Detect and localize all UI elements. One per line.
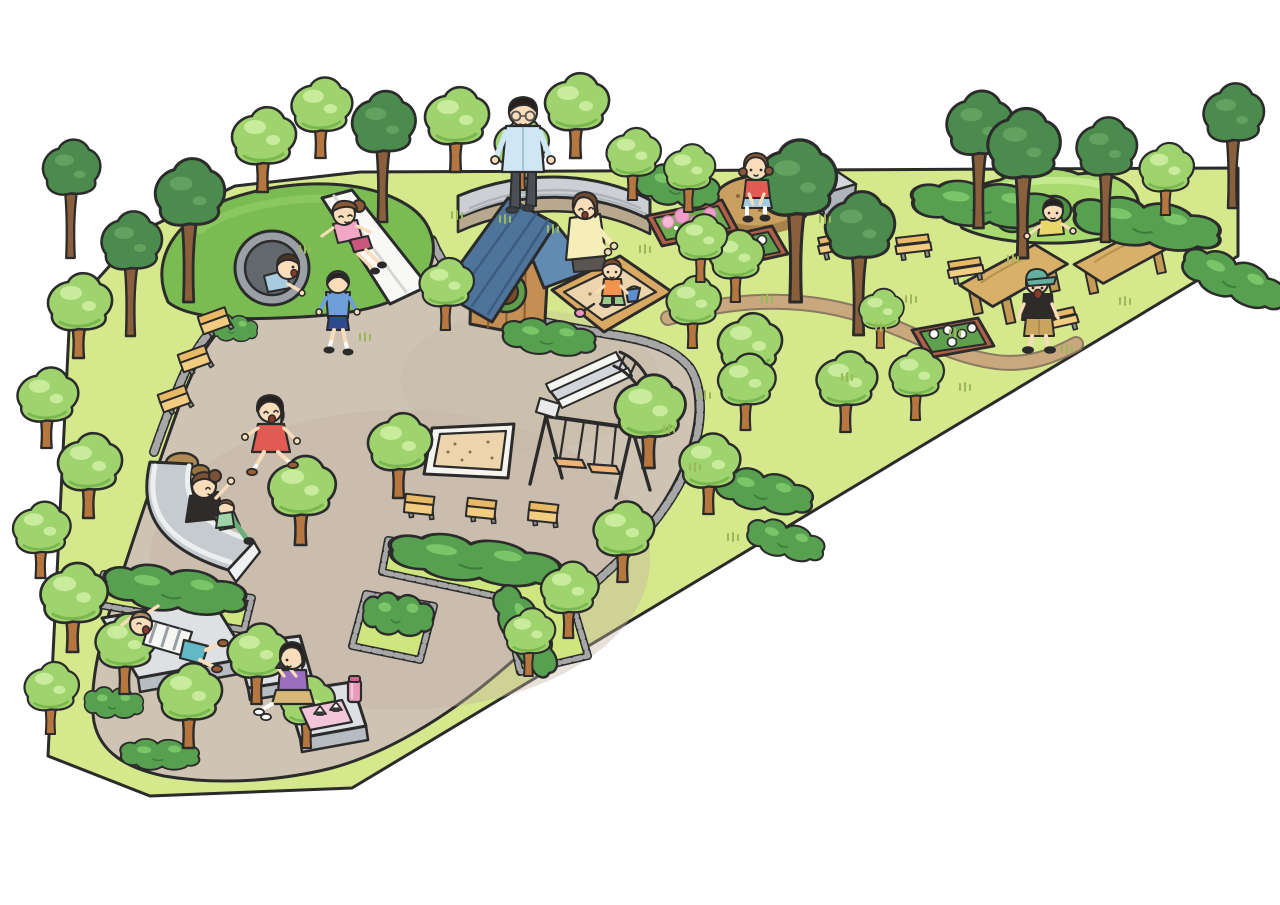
sand-pit <box>424 424 514 478</box>
tall-tree <box>43 140 100 258</box>
toy-bucket <box>626 286 640 302</box>
thermos <box>348 676 361 702</box>
child-on-lap <box>216 500 234 528</box>
swing-seat-1 <box>554 458 586 468</box>
round-tree <box>545 73 609 158</box>
park-illustration <box>0 0 1280 905</box>
swing-seat-2 <box>588 464 620 474</box>
round-tree <box>425 87 489 172</box>
round-tree <box>291 77 352 158</box>
illustration-canvas <box>0 0 1280 905</box>
